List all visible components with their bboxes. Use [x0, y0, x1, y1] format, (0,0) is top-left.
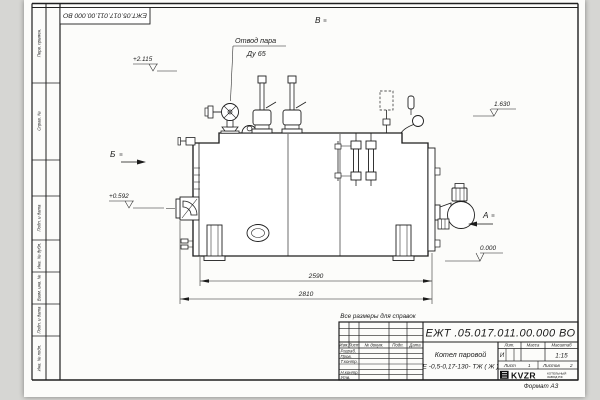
sheets-label: Листов — [542, 363, 560, 368]
margin-labels: Перв. примен. Справ. № Подп. и дата Инв.… — [37, 29, 42, 372]
burner — [435, 184, 475, 230]
kvzr-logo-text: KVZR — [511, 370, 536, 380]
view-label-b: Б — [110, 150, 116, 159]
title-block: Все размеры для справок — [339, 312, 578, 390]
safety-valve-1 — [252, 76, 276, 133]
col-header: № докум. — [365, 343, 384, 348]
designation-rotated: ЕЖТ.05.017.011.00.000 ВО — [62, 11, 147, 18]
elevation-burner-axis: +0.592 — [109, 193, 164, 208]
view-subscript — [120, 153, 123, 156]
manhole — [247, 225, 269, 242]
dimension-value: 2810 — [298, 291, 314, 298]
lit-value: И — [500, 353, 505, 359]
format-note: Формат А3 — [524, 383, 559, 390]
margin-label: Инв. № подл. — [37, 345, 42, 372]
sheets-value: 2 — [569, 363, 573, 368]
upper-left-valve — [178, 138, 195, 146]
reference-note: Все размеры для справок — [340, 312, 416, 320]
row-label: Утв. — [341, 375, 351, 380]
col-header: Лист — [347, 343, 359, 348]
col-header: Подп. — [392, 343, 403, 348]
support-saddle-front — [204, 225, 225, 261]
elevation-rear-top: 1.630 — [473, 101, 516, 116]
view-marker-top: В — [315, 16, 327, 25]
dimension-value: 2590 — [308, 273, 324, 280]
elevation-valve-top: +2.115 — [133, 56, 177, 71]
view-label-a: А — [482, 211, 489, 220]
scale-value: 1:15 — [555, 352, 568, 359]
margin-label: Подп. и дата — [37, 306, 42, 334]
view-label-v: В — [315, 16, 321, 25]
dashed-connection-box — [380, 91, 393, 133]
margin-label: Взам. инв. № — [37, 274, 42, 301]
blowdown-elbow — [176, 197, 199, 220]
kvzr-logo-sub2: ЗАВОД РФ — [547, 375, 563, 379]
safety-valve-2 — [282, 76, 306, 133]
row-label: Пров. — [341, 354, 352, 359]
view-subscript — [492, 214, 495, 217]
boiler-main-body — [193, 133, 428, 256]
steam-outlet-valve — [205, 104, 239, 134]
callout-line1: Отвод пара — [235, 36, 276, 45]
pressure-gauge — [401, 116, 424, 134]
rear-tube-plate — [428, 148, 440, 251]
col-header: Дата — [408, 343, 421, 348]
steam-outlet-callout: Отвод пара Ду 65 — [231, 36, 287, 101]
col-header: Изм. — [339, 343, 348, 348]
top-left-designation-box: ЕЖТ.05.017.011.00.000 ВО — [60, 8, 150, 25]
margin-label: Подп. и дата — [37, 204, 42, 232]
row-label: Разраб. — [341, 348, 357, 353]
elevation-value: +2.115 — [133, 56, 153, 63]
callout-line2: Ду 65 — [246, 49, 267, 58]
elevation-value: 1.630 — [494, 101, 510, 108]
product-name-line1: Котел паровой — [435, 350, 487, 359]
scale-header: Масштаб — [551, 343, 572, 348]
elevation-value: +0.592 — [109, 193, 129, 200]
drain-fitting — [181, 239, 193, 249]
mass-header: Масса — [527, 343, 540, 348]
title-block-designation: ЕЖТ .05.017.011.00.000 ВО — [426, 328, 576, 340]
elevation-base: 0.000 — [445, 245, 503, 261]
margin-label: Инв. № дубл. — [37, 243, 42, 269]
view-arrow-right — [137, 160, 146, 165]
lit-header: Лит. — [503, 343, 514, 348]
product-name-line2: Е -0,5-0,17-130- ТЖ ( Ж ) — [423, 364, 499, 371]
margin-label: Справ. № — [37, 111, 42, 131]
kvzr-logo: KVZR КОТЕЛЬНЫЙ ЗАВОД РФ — [500, 370, 566, 380]
view-subscript — [324, 19, 327, 22]
margin-label: Перв. примен. — [37, 29, 42, 58]
view-marker-left: Б — [110, 150, 146, 165]
boiler-general-view-drawing: Перв. примен. Справ. № Подп. и дата Инв.… — [0, 0, 600, 400]
thermometer — [408, 96, 414, 115]
sheet-value: 1 — [528, 363, 531, 368]
row-label: Т.контр. — [341, 359, 358, 364]
sheet-label: Лист — [503, 363, 516, 368]
row-label: Н.контр. — [341, 370, 359, 375]
elevation-value: 0.000 — [480, 245, 496, 252]
support-saddle-rear — [393, 225, 414, 261]
